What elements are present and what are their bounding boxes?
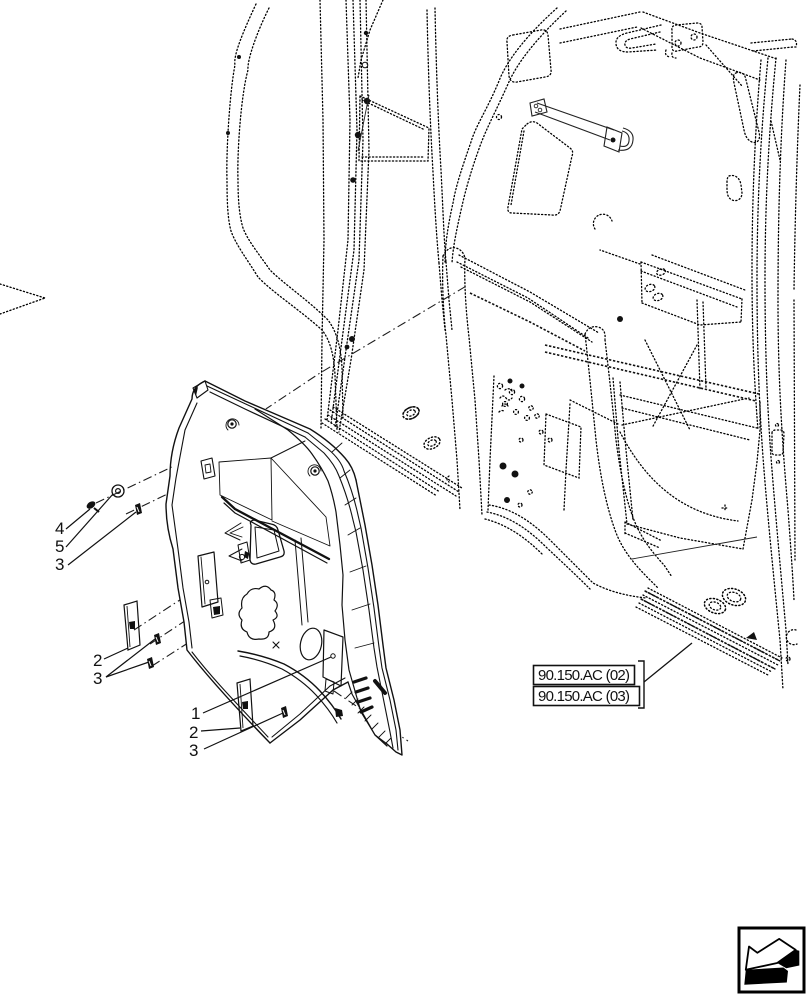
svg-text:3: 3 <box>93 669 102 688</box>
svg-text:2: 2 <box>93 651 102 670</box>
svg-text:2: 2 <box>189 723 198 742</box>
svg-text:3: 3 <box>55 555 64 574</box>
svg-text:1: 1 <box>191 704 200 723</box>
svg-text:3: 3 <box>189 741 198 760</box>
svg-text:90.150.AC (02): 90.150.AC (02) <box>538 667 630 684</box>
svg-text:90.150.AC (03): 90.150.AC (03) <box>538 688 630 705</box>
svg-text:5: 5 <box>55 537 64 556</box>
svg-text:4: 4 <box>55 519 64 538</box>
